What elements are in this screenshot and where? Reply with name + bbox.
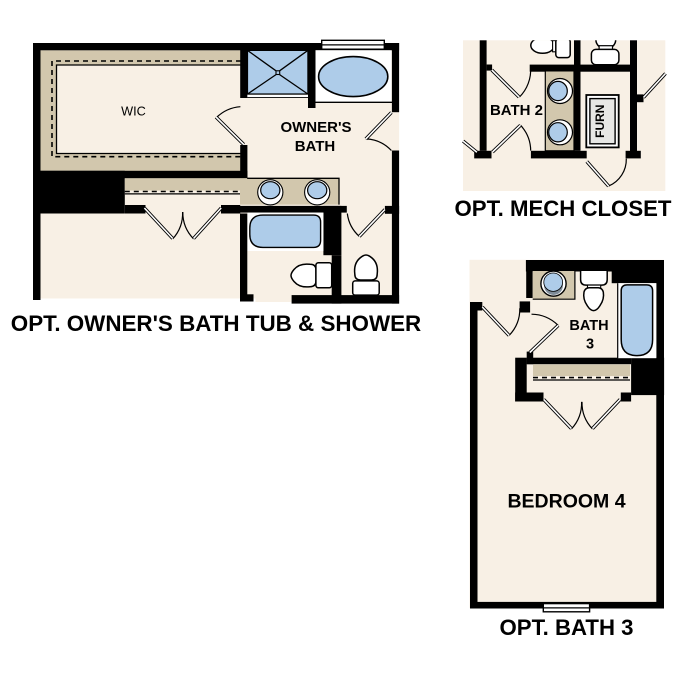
svg-text:BATH: BATH [295, 138, 336, 155]
svg-text:BATH: BATH [569, 318, 608, 334]
svg-text:FURN: FURN [593, 105, 607, 138]
svg-text:OPT. BATH 3: OPT. BATH 3 [500, 615, 634, 640]
svg-text:3: 3 [586, 337, 594, 353]
svg-text:OPT. OWNER'S BATH TUB & SHOWER: OPT. OWNER'S BATH TUB & SHOWER [11, 311, 421, 336]
svg-text:BEDROOM 4: BEDROOM 4 [507, 491, 625, 513]
svg-text:OPT. MECH CLOSET: OPT. MECH CLOSET [455, 196, 672, 221]
svg-text:WIC: WIC [121, 105, 146, 119]
svg-text:BATH 2: BATH 2 [490, 102, 543, 119]
svg-text:OWNER'S: OWNER'S [280, 119, 351, 136]
